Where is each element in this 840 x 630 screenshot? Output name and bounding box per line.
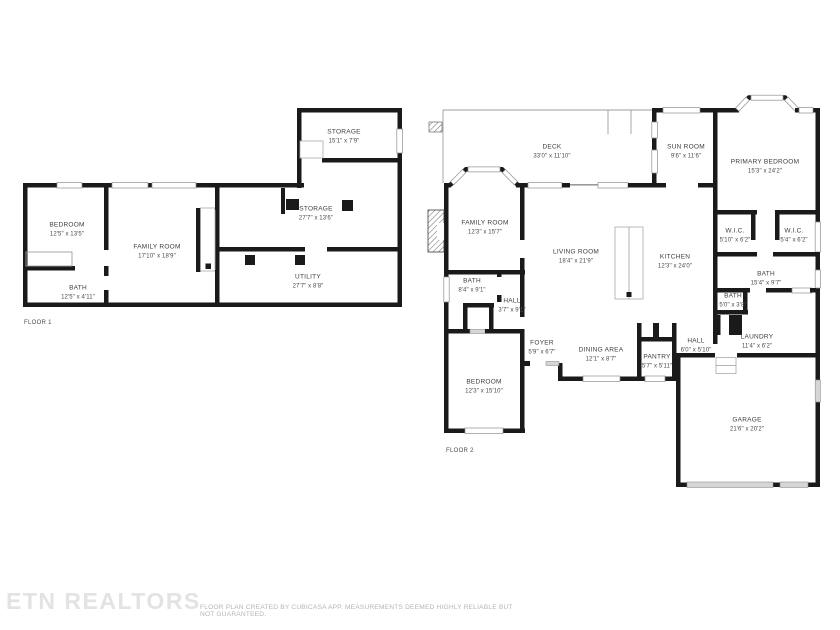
room-label-garage: GARAGE 21'6" x 20'2"	[730, 416, 764, 435]
room-label-bath-small: BATH 5'0" x 3'8"	[719, 292, 746, 311]
room-label-storage-upper: STORAGE 15'1" x 7'9"	[327, 128, 360, 147]
room-label-storage-lower: STORAGE 27'7" x 13'6"	[299, 205, 333, 224]
room-label-dining-area: DINING AREA 12'1" x 8'7"	[579, 346, 624, 365]
room-label-family-room-f1: FAMILY ROOM 17'10" x 18'9"	[133, 243, 180, 262]
room-label-living-room: LIVING ROOM 18'4" x 21'9"	[553, 248, 599, 267]
room-label-hall-rear: HALL 6'0" x 5'10"	[681, 337, 712, 356]
disclaimer-text: FLOOR PLAN CREATED BY CUBICASA APP. MEAS…	[200, 604, 520, 618]
room-label-laundry: LAUNDRY 11'4" x 6'2"	[741, 333, 774, 352]
room-label-pantry: PANTRY 5'7" x 5'11"	[642, 353, 672, 372]
room-label-bath-main: BATH 15'4" x 9'7"	[751, 270, 782, 289]
room-label-utility: UTILITY 27'7" x 8'8"	[293, 273, 324, 292]
floorplan-walls	[0, 0, 840, 630]
room-label-bath-f1: BATH 12'5" x 4'11"	[61, 284, 95, 303]
floor2-label: FLOOR 2	[446, 448, 474, 454]
room-label-family-room-f2: FAMILY ROOM 12'3" x 15'7"	[461, 219, 508, 238]
floorplan-page: STORAGE 15'1" x 7'9" STORAGE 27'7" x 13'…	[0, 0, 840, 630]
room-label-bedroom-f1: BEDROOM 12'5" x 13'5"	[49, 221, 84, 240]
room-label-hall-small: HALL 3'7" x 9'1"	[498, 297, 525, 316]
fireplace-icon	[428, 210, 444, 252]
room-label-primary-bedroom: PRIMARY BEDROOM 15'3" x 24'2"	[731, 158, 800, 177]
staircase-icon	[615, 227, 643, 299]
floor1-label: FLOOR 1	[24, 320, 52, 326]
room-label-deck: DECK 33'0" x 11'10"	[533, 143, 570, 162]
room-label-bath-left: BATH 8'4" x 9'1"	[458, 277, 485, 296]
room-label-wic-1: W.I.C. 5'10" x 6'2"	[720, 227, 751, 246]
room-label-sun-room: SUN ROOM 9'6" x 11'6"	[667, 143, 705, 162]
room-label-wic-2: W.I.C. 5'4" x 6'2"	[780, 227, 807, 246]
realtor-watermark: ETN REALTORS	[6, 588, 201, 615]
room-label-bedroom-f2: BEDROOM 12'3" x 15'10"	[465, 378, 503, 397]
room-label-kitchen: KITCHEN 12'3" x 24'0"	[658, 253, 692, 272]
room-label-foyer: FOYER 5'9" x 6'7"	[528, 339, 555, 358]
